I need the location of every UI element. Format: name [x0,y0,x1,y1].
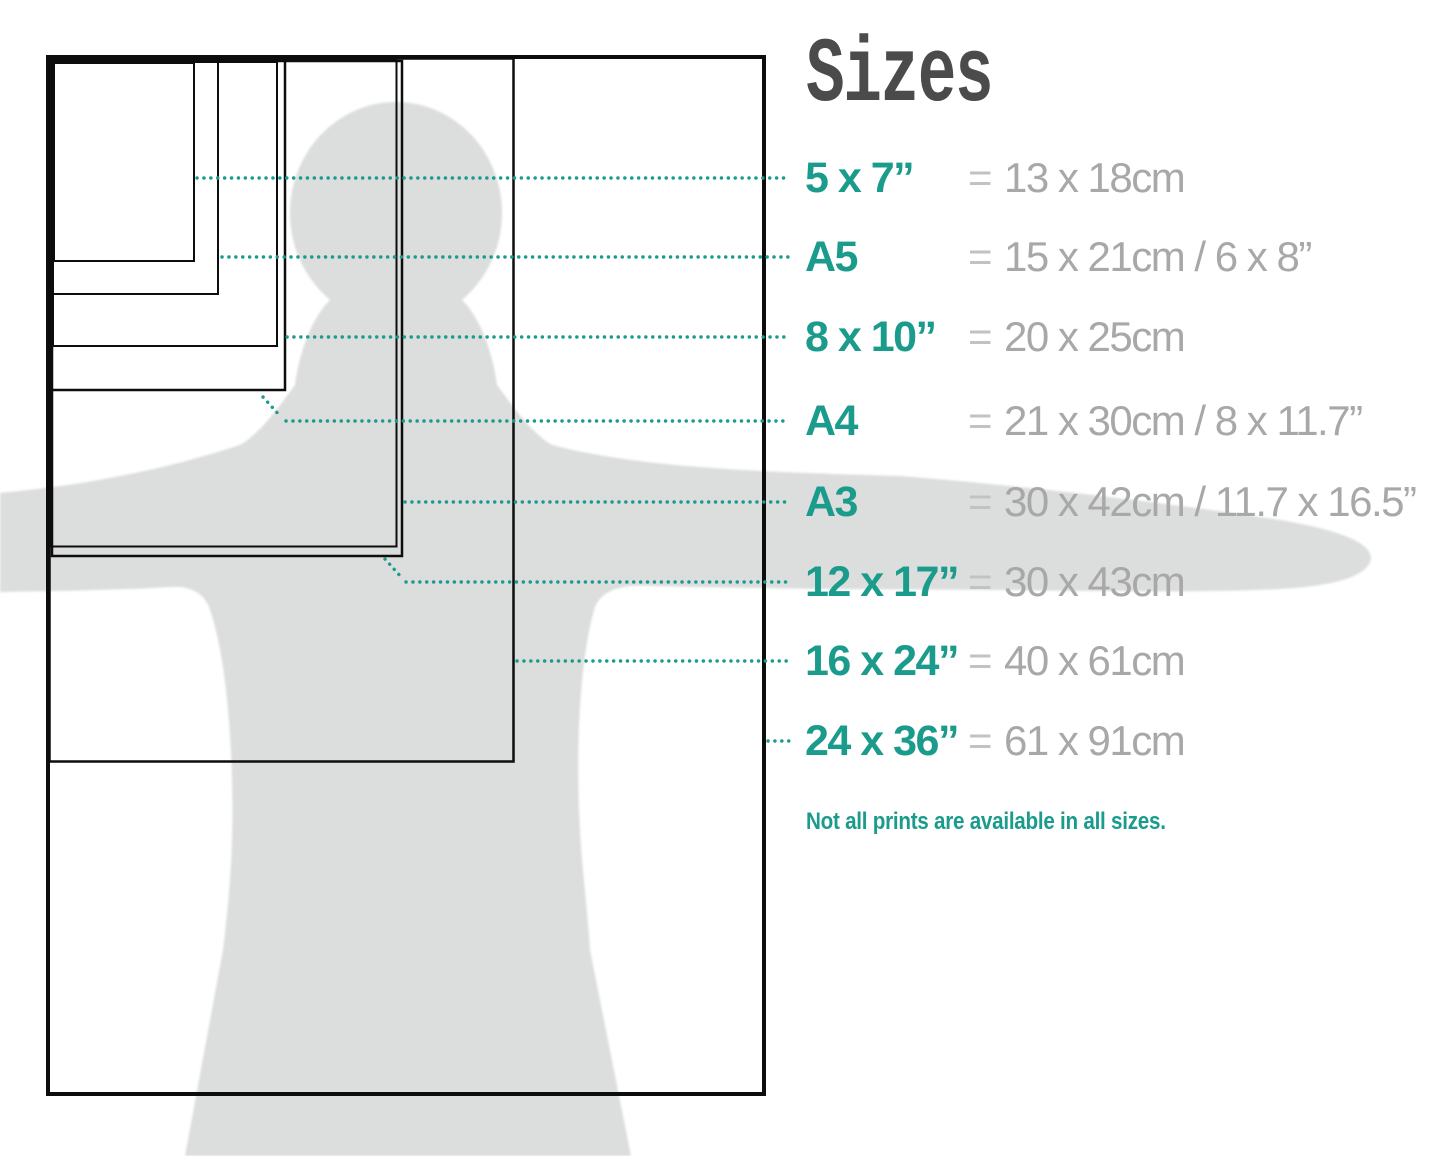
size-value-16x24: 40 x 61cm [1004,637,1184,685]
size-row-24x36: 24 x 36” = 61 x 91cm [805,710,1184,772]
size-row-a4: A4 = 21 x 30cm / 8 x 11.7” [805,390,1362,452]
size-value-a5: 15 x 21cm / 6 x 8” [1004,233,1311,281]
size-row-12x17: 12 x 17” = 30 x 43cm [805,551,1184,613]
size-diagram-canvas [0,0,1445,1156]
size-label-a3: A3 [805,478,968,527]
size-label-24x36: 24 x 36” [805,717,968,766]
equals-sign: = [968,637,1004,685]
equals-sign: = [968,154,1004,202]
page-title: Sizes [806,30,992,122]
size-rect-a4 [51,60,285,390]
size-rect-5x7 [54,63,194,261]
size-label-a5: A5 [805,233,968,282]
size-value-8x10: 20 x 25cm [1004,313,1184,361]
size-rect-8x10 [53,62,277,346]
size-row-5x7: 5 x 7” = 13 x 18cm [805,147,1184,209]
size-value-a4: 21 x 30cm / 8 x 11.7” [1004,397,1362,445]
size-label-8x10: 8 x 10” [805,313,968,362]
size-guide-diagram: Sizes 5 x 7” = 13 x 18cm A5 = 15 x 21cm … [0,0,1445,1156]
equals-sign: = [968,558,1004,606]
size-value-12x17: 30 x 43cm [1004,558,1184,606]
size-row-a5: A5 = 15 x 21cm / 6 x 8” [805,226,1311,288]
size-value-a3: 30 x 42cm / 11.7 x 16.5” [1004,478,1415,526]
equals-sign: = [968,313,1004,361]
size-label-16x24: 16 x 24” [805,637,968,686]
size-row-a3: A3 = 30 x 42cm / 11.7 x 16.5” [805,471,1415,533]
equals-sign: = [968,233,1004,281]
size-label-5x7: 5 x 7” [805,154,968,203]
size-label-12x17: 12 x 17” [805,558,968,607]
size-value-5x7: 13 x 18cm [1004,154,1184,202]
equals-sign: = [968,397,1004,445]
size-value-24x36: 61 x 91cm [1004,717,1184,765]
size-label-a4: A4 [805,397,968,446]
size-row-16x24: 16 x 24” = 40 x 61cm [805,630,1184,692]
equals-sign: = [968,717,1004,765]
equals-sign: = [968,478,1004,526]
availability-note: Not all prints are available in all size… [806,806,1166,838]
size-row-8x10: 8 x 10” = 20 x 25cm [805,306,1184,368]
